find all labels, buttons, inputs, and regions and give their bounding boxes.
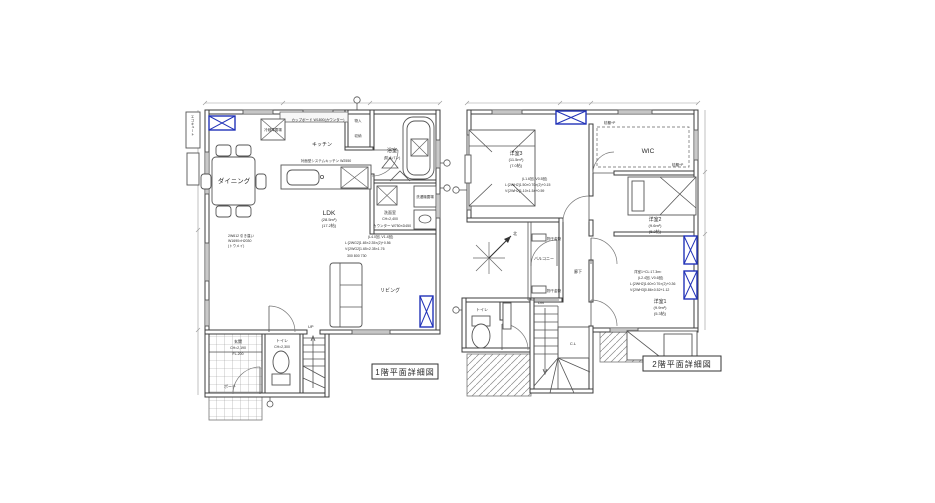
floor2-blue-window-room1-upper bbox=[684, 236, 697, 264]
floor1-title: 1階平面詳細図 bbox=[372, 364, 438, 379]
stairs-down-label: DN bbox=[538, 300, 544, 305]
vanity-icon bbox=[414, 210, 436, 229]
north-arrow-icon bbox=[473, 236, 511, 274]
room-label-room2: 洋室2 bbox=[649, 216, 662, 223]
sofa-icon bbox=[330, 263, 362, 327]
room2-tatami: (5.2帖) bbox=[649, 228, 662, 234]
bed-icon-room3 bbox=[465, 130, 535, 206]
room-label-toilet-1f: トイレ bbox=[276, 338, 288, 343]
washer-label: 洗濯機置場 bbox=[416, 194, 434, 199]
room-label-bath: 浴室 bbox=[387, 147, 397, 154]
dims-note: 300 800 730 bbox=[347, 254, 367, 258]
closet-lower-label: 収納 bbox=[355, 133, 363, 138]
floor2-wall-markers bbox=[453, 187, 467, 313]
room-label-wic: WIC bbox=[642, 148, 655, 155]
glazing-note-3: V:[2WG2]1.65×2.35×1.76 bbox=[345, 247, 385, 251]
room1-glazing-3: V:[2WH3]0.86×0.52+1.12 bbox=[630, 288, 669, 292]
laundry-pole-bracket-upper bbox=[532, 234, 546, 241]
room-label-dining: ダイニング bbox=[218, 176, 251, 185]
fridge-label: 冷蔵庫置場 bbox=[264, 127, 282, 132]
laundry-bracket-label-1: 物干金物 bbox=[547, 236, 561, 241]
room-label-washroom: 洗面室 bbox=[384, 209, 396, 215]
glazing-note-1: (L4.0回, V1.4回) bbox=[368, 235, 393, 239]
room-label-balcony: バルコニー bbox=[534, 256, 554, 261]
stairs-up-label: UP bbox=[308, 324, 314, 329]
ldk-tatami: (17.2帖) bbox=[322, 222, 337, 228]
floor1-blue-window-top bbox=[209, 116, 235, 130]
room3-tatami: (7.0帖) bbox=[510, 162, 523, 168]
room-label-entrance: 玄関 bbox=[234, 338, 242, 344]
kitchen-counter-icon bbox=[281, 165, 371, 189]
washroom-ch: CH=2,400 bbox=[382, 217, 398, 221]
room-label-corridor: 廊下 bbox=[574, 268, 582, 274]
closet-upper-label: 物入 bbox=[355, 118, 363, 123]
floorplan-canvas: エコキュート ダイニング キッチン 対面型システムキッチン W2550 カップボ… bbox=[0, 0, 935, 503]
glazing-note-2: L:[2WG2]1.65×2.35×(2)+0.56 bbox=[345, 241, 391, 245]
sliding-note-2: W1690×H2030 bbox=[228, 239, 252, 243]
cupboard-label: カップボード W1800(カウンター) bbox=[292, 117, 345, 122]
porch-tile-floor bbox=[209, 397, 262, 420]
toilet-icon-1f bbox=[272, 351, 290, 385]
floor2-blue-window-top bbox=[556, 111, 586, 124]
washroom-closet-icon bbox=[377, 186, 397, 205]
room1-glazing-2: L:[2WH2]1.60×0.70×(2)+0.36 bbox=[630, 282, 675, 286]
toilet-ch: CH=2,300 bbox=[274, 345, 290, 349]
room3-glazing-3: V:[2WH2]1.10×1.54+0.59 bbox=[505, 189, 544, 193]
room1-area: (9.9m²) bbox=[654, 305, 668, 310]
laundry-bracket-label-2: 物干金物 bbox=[547, 288, 561, 293]
wic-shelf-note-2: 枕棚+P bbox=[672, 162, 684, 167]
floor1-blue-window-living bbox=[420, 296, 433, 327]
floor1-title-text: 1階平面詳細図 bbox=[375, 367, 434, 377]
kitchen-note: 対面型システムキッチン W2550 bbox=[301, 158, 352, 163]
room3-glazing-2: L:[2WH2]1.50×0.70×(2)+0.15 bbox=[505, 183, 550, 187]
wic-shelf-note-1: 枕棚+P bbox=[604, 120, 616, 125]
floor2-title-text: 2階平面詳細図 bbox=[652, 359, 711, 369]
room1-tatami: (5.3帖) bbox=[654, 310, 667, 316]
ecocute-label: エコキュート bbox=[190, 115, 195, 136]
stairs-up-icon bbox=[303, 336, 325, 388]
north-label: 北 bbox=[513, 230, 517, 236]
counter-note: カウンター W750×D450 bbox=[373, 223, 411, 228]
room-label-kitchen: キッチン bbox=[312, 142, 332, 148]
laundry-pole-bracket-lower bbox=[532, 286, 546, 293]
room3-area: (11.5m²) bbox=[509, 157, 524, 162]
room-label-room1: 洋室1 bbox=[654, 298, 667, 305]
sliding-note-1: 2W612 引き違い bbox=[228, 233, 255, 238]
sliding-note-3: (トウメイ) bbox=[228, 243, 244, 248]
entrance-fl: FL-200 bbox=[232, 352, 243, 356]
floor2-plan: 洋室3 (11.5m²) (7.0帖) (L1.6回, V0.5回) L:[2W… bbox=[453, 101, 721, 396]
room-label-porch: ポーチ bbox=[224, 383, 236, 389]
floor2-blue-window-room1-lower bbox=[684, 271, 697, 299]
closet-cl-label: C.L bbox=[570, 341, 577, 346]
room1-glazing-1: (L2.4回, V0.6回) bbox=[638, 276, 663, 280]
floorplan-drawing: エコキュート ダイニング キッチン 対面型システムキッチン W2550 カップボ… bbox=[0, 0, 935, 503]
room-label-toilet-2f: トイレ bbox=[476, 307, 488, 312]
room-label-living: リビング bbox=[380, 287, 400, 294]
wic-shelf-outline bbox=[597, 127, 689, 167]
room-label-room3: 洋室3 bbox=[510, 150, 523, 157]
ldk-area: (28.5m²) bbox=[321, 217, 337, 222]
room3-glazing-1: (L1.6回, V0.5回) bbox=[522, 177, 547, 181]
bed-icon-room2 bbox=[628, 177, 696, 215]
floor1-plan: エコキュート ダイニング キッチン 対面型システムキッチン W2550 カップボ… bbox=[186, 97, 450, 420]
entrance-ch: CH=2,190 bbox=[230, 346, 246, 350]
room1-calc-note: 洋室1+CL:17.3m² bbox=[634, 269, 662, 274]
floor2-title: 2階平面詳細図 bbox=[643, 356, 721, 371]
room-label-ldk: LDK bbox=[323, 210, 336, 217]
room2-area: (9.6m²) bbox=[649, 223, 663, 228]
roof-hatch-southwest bbox=[467, 354, 531, 396]
bath-note: (防水パン) bbox=[384, 155, 401, 160]
